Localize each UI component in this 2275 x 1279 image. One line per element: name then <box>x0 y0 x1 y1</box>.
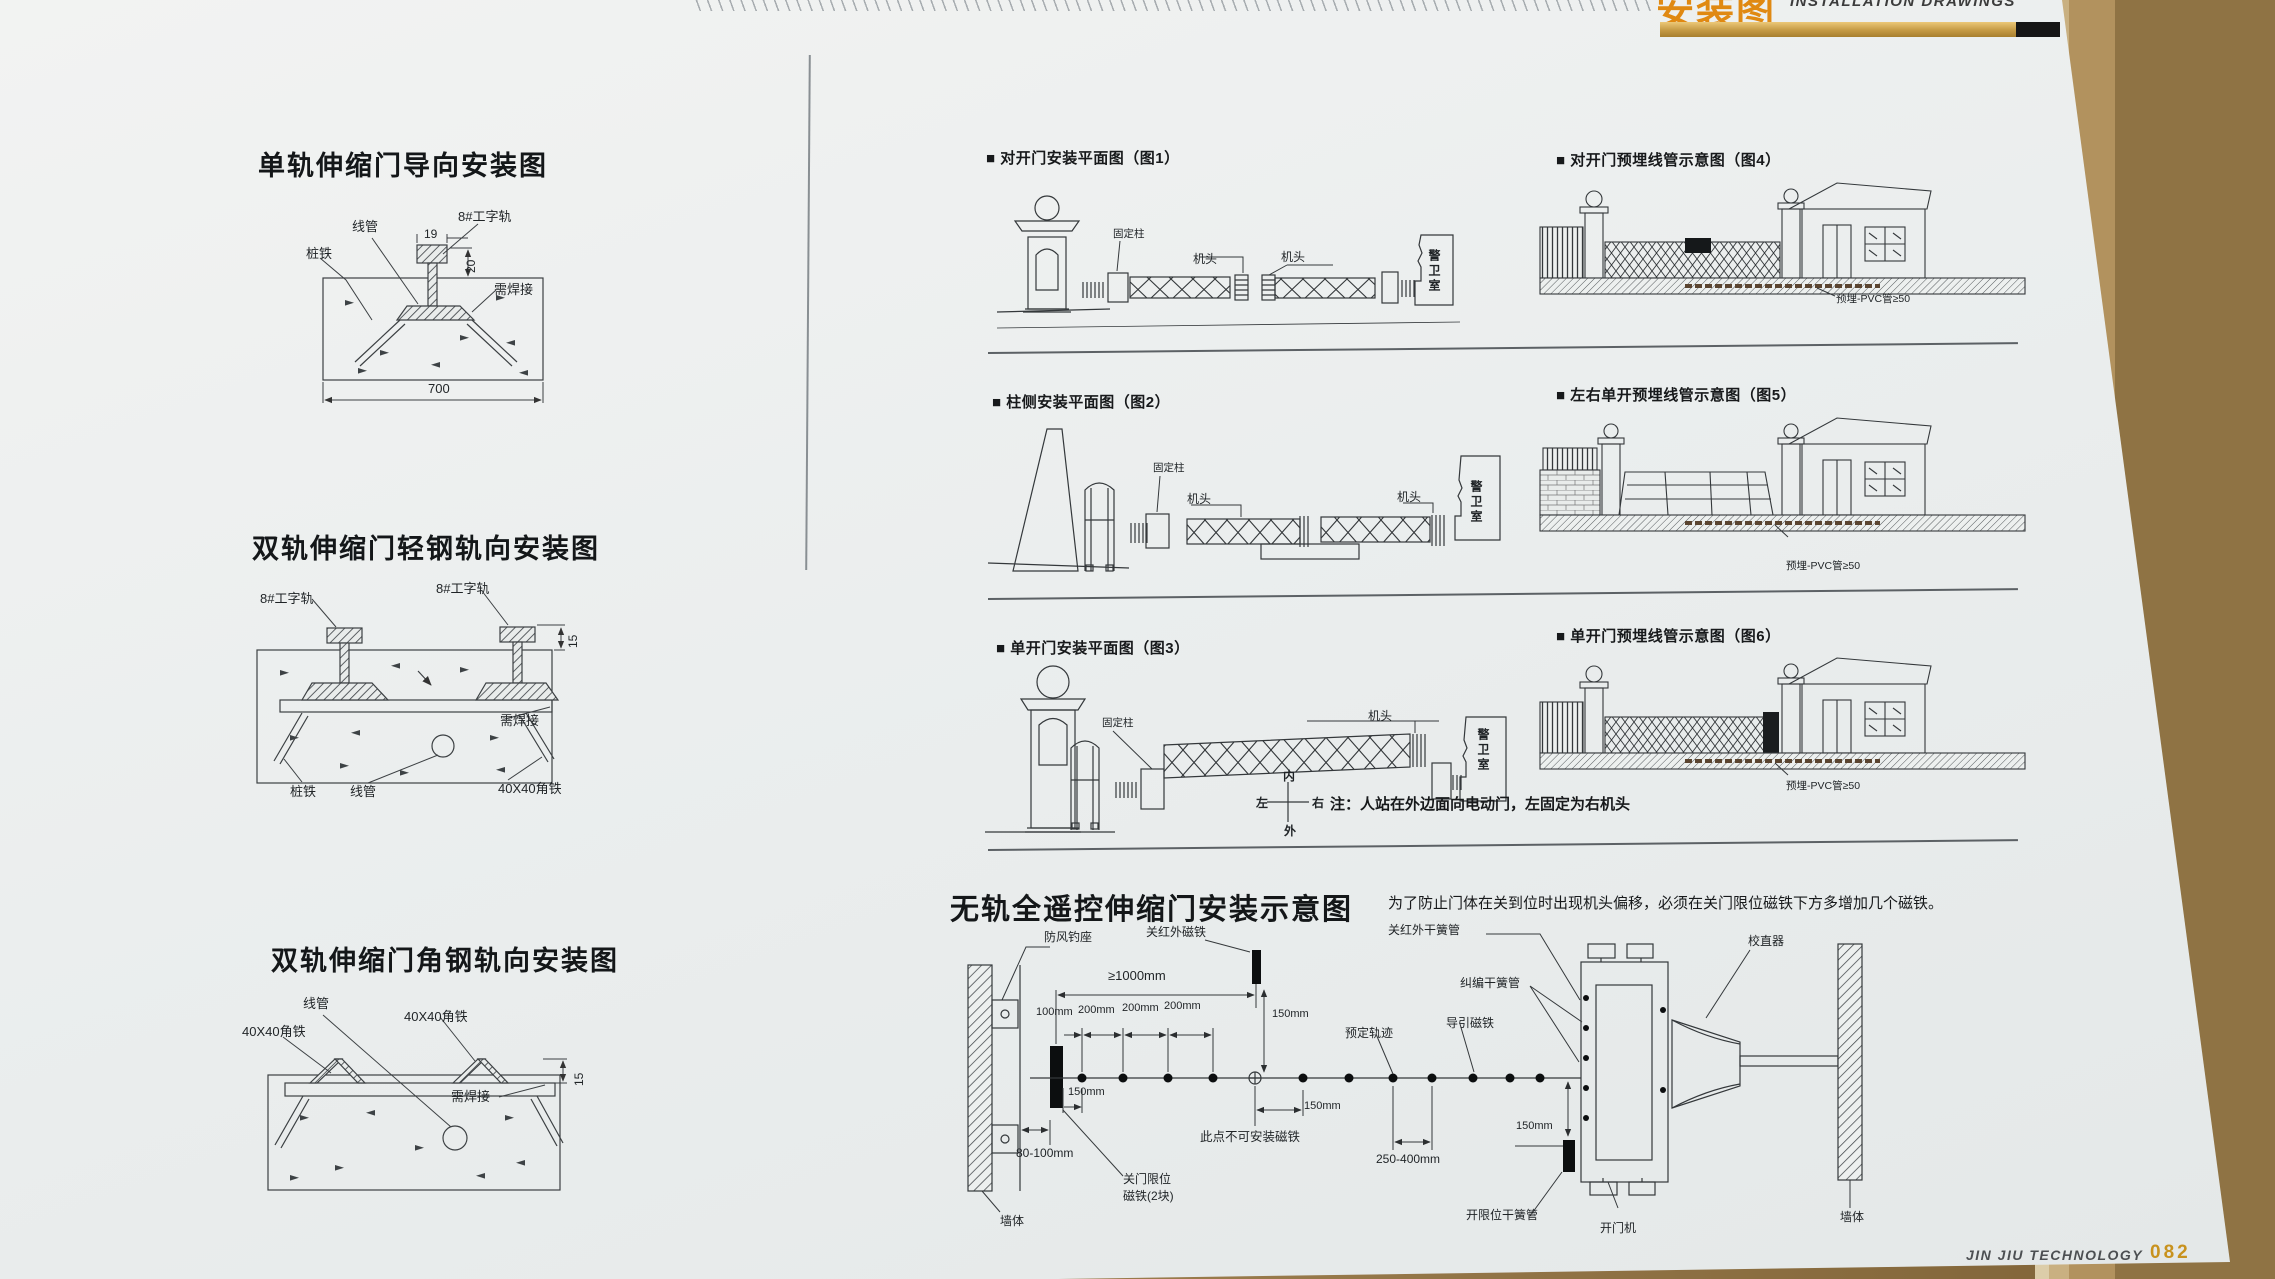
label-dim-700: 700 <box>428 381 450 397</box>
header-title-en: INSTALLATION DRAWINGS <box>1790 0 2040 10</box>
ground-strip <box>1540 278 2025 294</box>
fence <box>1540 702 1583 753</box>
header-gold-bar-tip <box>2016 22 2060 37</box>
fig2-label-head-right: 机头 <box>1397 490 1421 504</box>
label-dim-100: 100mm <box>1036 1006 1073 1019</box>
dim-100-200-row <box>1064 1028 1213 1072</box>
label-dim-1000: ≥1000mm <box>1108 968 1166 984</box>
guide-plate <box>1261 544 1359 559</box>
spring-coupler <box>1116 782 1136 798</box>
trackless-title: 无轨全遥控伸缩门安装示意图 <box>950 886 1353 928</box>
machine-head-left <box>1235 275 1248 300</box>
retractable-gate <box>1605 717 1765 753</box>
fig5-title: ■ 左右单开预埋线管示意图（图5） <box>1556 384 1796 405</box>
dim-15-bracket <box>543 1059 567 1083</box>
leader-wall-left <box>982 1191 1000 1212</box>
compass-cross <box>1267 782 1309 822</box>
fig3-label-head: 机头 <box>1368 709 1392 723</box>
pointer-arrow <box>418 671 431 685</box>
trackless-installation-diagram <box>660 920 1910 1250</box>
anchor-stakes <box>355 320 517 366</box>
label-door-opener: 开门机 <box>1600 1221 1636 1235</box>
pillar-left <box>1580 191 1608 278</box>
fig4-title: ■ 对开门预埋线管示意图（图4） <box>1556 149 1781 170</box>
fig2-plan-view <box>985 420 1505 580</box>
leader-guide-magnet <box>1460 1024 1474 1072</box>
label-dim-80-100: 80-100mm <box>1016 1146 1073 1160</box>
straightener-rod <box>1740 1056 1838 1066</box>
spring-coupler-right <box>1402 280 1414 297</box>
base-plate <box>280 700 552 712</box>
angle-steel-right <box>453 1059 508 1083</box>
steel-rail-left <box>302 628 388 700</box>
fig1-title: ■ 对开门安装平面图（图1） <box>986 147 1180 168</box>
column-divider-line <box>805 55 810 570</box>
fig6-title: ■ 单开门预埋线管示意图（图6） <box>1556 625 1781 646</box>
fig3-compass-left: 左 <box>1256 796 1268 810</box>
machine-head <box>1413 734 1425 767</box>
machine-head-right <box>1262 275 1275 300</box>
folded-gate-leaf <box>1085 483 1114 571</box>
fig3-label-fixed-post: 固定柱 <box>1102 717 1134 730</box>
ground-strip <box>1540 753 2025 769</box>
diagram2-double-rail-section <box>250 595 570 800</box>
catalog-photo: 安装图 INSTALLATION DRAWINGS 单轨伸缩门导向安装图 <box>0 0 2275 1279</box>
guard-house <box>1789 183 1931 278</box>
dim-15-bracket <box>537 625 565 650</box>
header-gold-bar <box>1660 22 2016 37</box>
pillar-left <box>1580 666 1608 753</box>
label-conduit: 线管 <box>350 784 376 800</box>
label-close-ir-magnet: 关红外磁铁 <box>1146 925 1206 939</box>
ground-strip <box>1540 515 2025 531</box>
label-guide-magnet: 导引磁铁 <box>1446 1016 1494 1030</box>
label-close-limit-1: 关门限位 <box>1123 1172 1171 1186</box>
fig2-label-fixed-post: 固定柱 <box>1153 462 1185 475</box>
spring-coupler <box>1131 523 1147 543</box>
no-magnet-point <box>1249 1072 1261 1084</box>
label-rail-right: 8#工字轨 <box>436 581 489 597</box>
fig1-plan-view <box>995 195 1465 335</box>
gate-pillar <box>1021 666 1085 832</box>
pillar-left <box>1598 424 1624 515</box>
fig5-elevation-view <box>1535 410 2030 545</box>
fixed-post <box>1146 514 1169 548</box>
row-separator-2 <box>988 588 2018 599</box>
label-open-limit-reed: 开限位干簧管 <box>1466 1208 1538 1222</box>
fig3-label-guard-room: 警卫室 <box>1475 728 1492 773</box>
fig5-label-pvc: 预埋-PVC管≥50 <box>1786 560 1860 573</box>
row-separator-1 <box>988 342 2018 353</box>
label-dim-20: 20 <box>464 260 478 273</box>
fence <box>1540 227 1583 278</box>
machine-head-left <box>1300 516 1308 547</box>
label-wall-left: 墙体 <box>1000 1214 1024 1228</box>
concrete-speckles <box>280 663 505 776</box>
diagram2-title: 双轨伸缩门轻钢轨向安装图 <box>252 527 600 566</box>
label-weld: 需焊接 <box>451 1089 490 1105</box>
fig3-compass-outer: 外 <box>1284 824 1296 838</box>
fig4-elevation-view <box>1535 175 2030 310</box>
fixed-post <box>1108 273 1128 302</box>
gate-pillar <box>1015 196 1079 312</box>
fig2-label-guard-room: 警卫室 <box>1468 480 1485 525</box>
fig3-note: 注：人站在外边面向电动门，左固定为右机头 <box>1330 793 1630 814</box>
label-dim-200b: 200mm <box>1122 1002 1159 1015</box>
pillar-right <box>1778 664 1804 753</box>
spring-coupler-left <box>1083 282 1103 298</box>
label-dim-250-400: 250-400mm <box>1376 1152 1440 1166</box>
fig3-title: ■ 单开门安装平面图（图3） <box>996 637 1190 658</box>
close-limit-magnet-bar <box>1050 1046 1063 1108</box>
leader-align-reed <box>1530 986 1582 1062</box>
fig3-compass-right: 右 <box>1312 796 1324 810</box>
control-box <box>1685 238 1711 253</box>
anchor-stakes <box>275 1096 563 1148</box>
label-stake: 桩铁 <box>290 784 316 800</box>
fig1-label-head-right: 机头 <box>1281 250 1305 264</box>
label-rail-left: 8#工字轨 <box>260 591 313 607</box>
header-hatch-pattern <box>690 0 1655 11</box>
catalog-page: 安装图 INSTALLATION DRAWINGS 单轨伸缩门导向安装图 <box>0 0 2275 1279</box>
fig2-label-head-left: 机头 <box>1187 492 1211 506</box>
wall-left <box>968 965 992 1191</box>
gate-leaf-right <box>1275 278 1375 298</box>
label-rail: 8#工字轨 <box>458 209 511 225</box>
gate-leaf-left <box>1187 519 1300 544</box>
label-track: 预定轨迹 <box>1345 1026 1393 1040</box>
brick-wall <box>1540 470 1600 515</box>
gate-leaf-right <box>1321 517 1430 542</box>
dim-150-right <box>1515 1082 1568 1146</box>
concrete-speckles <box>290 1110 525 1181</box>
label-dim-19: 19 <box>424 227 437 241</box>
label-straightener: 校直器 <box>1748 934 1784 948</box>
fig1-label-head-left: 机头 <box>1193 252 1217 266</box>
label-wind-hook: 防风钓座 <box>1044 930 1092 944</box>
label-weld: 需焊接 <box>500 713 539 729</box>
label-align-reed: 纠编干簧管 <box>1460 976 1520 990</box>
trackless-note: 为了防止门体在关到位时出现机头偏移，必须在关门限位磁铁下方多增加几个磁铁。 <box>1388 892 1943 913</box>
header-title-cn-clip: 安装图 <box>1656 0 1788 22</box>
footer-brand: JIN JIU TECHNOLOGY <box>1966 1247 2143 1263</box>
machine-head-unit <box>1763 712 1779 753</box>
steel-rail-right <box>476 627 558 700</box>
pillar-right <box>1778 189 1804 278</box>
label-stake: 桩铁 <box>306 246 332 262</box>
label-angle-iron: 40X40角铁 <box>498 781 562 797</box>
wall-pier <box>1013 429 1078 571</box>
leader-wind-hook <box>1002 947 1050 1000</box>
fig3-plan-view <box>985 650 1525 850</box>
label-dim-150a: 150mm <box>1272 1008 1309 1021</box>
conduit-pipe <box>443 1126 467 1150</box>
close-ir-magnet-bar <box>1252 950 1261 984</box>
label-angle-right: 40X40角铁 <box>404 1009 468 1025</box>
label-conduit: 线管 <box>352 219 378 235</box>
open-limit-reed-bar <box>1563 1140 1575 1172</box>
header-title-cn: 安装图 <box>1656 0 1788 22</box>
base-plate <box>285 1083 555 1096</box>
fixed-post <box>1141 769 1164 809</box>
label-wall-right: 墙体 <box>1840 1210 1864 1224</box>
label-dim-200a: 200mm <box>1078 1004 1115 1017</box>
leader-close-limit <box>1063 1110 1123 1176</box>
label-weld: 需焊接 <box>494 282 533 298</box>
fig6-elevation-view <box>1535 650 2030 785</box>
diagram1-title: 单轨伸缩门导向安装图 <box>258 144 548 183</box>
fence <box>1543 448 1597 470</box>
conduit-pipe <box>432 735 454 757</box>
label-dim-15: 15 <box>572 1073 586 1086</box>
wall-right <box>1838 944 1862 1180</box>
base-line <box>997 322 1460 328</box>
guard-house <box>1789 418 1931 515</box>
steel-rail-section <box>397 245 474 320</box>
label-dim-150c: 150mm <box>1304 1100 1341 1113</box>
label-dim-200c: 200mm <box>1164 1000 1201 1013</box>
label-angle-left: 40X40角铁 <box>242 1024 306 1040</box>
covered-gate <box>1619 472 1773 515</box>
label-conduit: 线管 <box>303 996 329 1012</box>
angle-steel-left <box>310 1059 365 1083</box>
fig1-label-guard-room: 警卫室 <box>1426 249 1443 294</box>
gate-leaf-left <box>1130 277 1230 298</box>
dim-80-100 <box>1020 1120 1050 1145</box>
door-opener-machine <box>1581 944 1668 1195</box>
label-dim-150d: 150mm <box>1516 1120 1553 1133</box>
fig1-label-fixed-post: 固定柱 <box>1113 228 1145 241</box>
diagram3-angle-steel-section <box>255 1015 575 1205</box>
fig2-title: ■ 柱侧安装平面图（图2） <box>992 391 1170 412</box>
header-title-en-clip: INSTALLATION DRAWINGS <box>1790 0 2040 15</box>
diagram3-title: 双轨伸缩门角钢轨向安装图 <box>271 939 619 978</box>
label-dim-15: 15 <box>566 635 580 648</box>
straightener-funnel <box>1672 1020 1740 1108</box>
end-post <box>1382 272 1398 303</box>
guard-house <box>1789 658 1931 753</box>
leader-straightener <box>1706 950 1750 1018</box>
label-close-limit-2: 磁铁(2块) <box>1123 1189 1174 1203</box>
label-close-ir-reed: 关红外干簧管 <box>1388 923 1460 937</box>
footer-page-number: 082 <box>2150 1242 2191 1264</box>
fig3-compass-inner: 内 <box>1283 769 1295 783</box>
machine-head-right <box>1432 515 1444 546</box>
fig4-label-pvc: 预埋-PVC管≥50 <box>1836 293 1910 306</box>
dim-150-mid <box>1255 1090 1303 1116</box>
label-dim-150b: 150mm <box>1068 1086 1105 1099</box>
label-no-magnet-here: 此点不可安装磁铁 <box>1200 1130 1300 1145</box>
leader-close-ir-magnet <box>1205 940 1250 952</box>
fig6-label-pvc: 预埋-PVC管≥50 <box>1786 780 1860 793</box>
dim-250-400 <box>1393 1086 1432 1150</box>
